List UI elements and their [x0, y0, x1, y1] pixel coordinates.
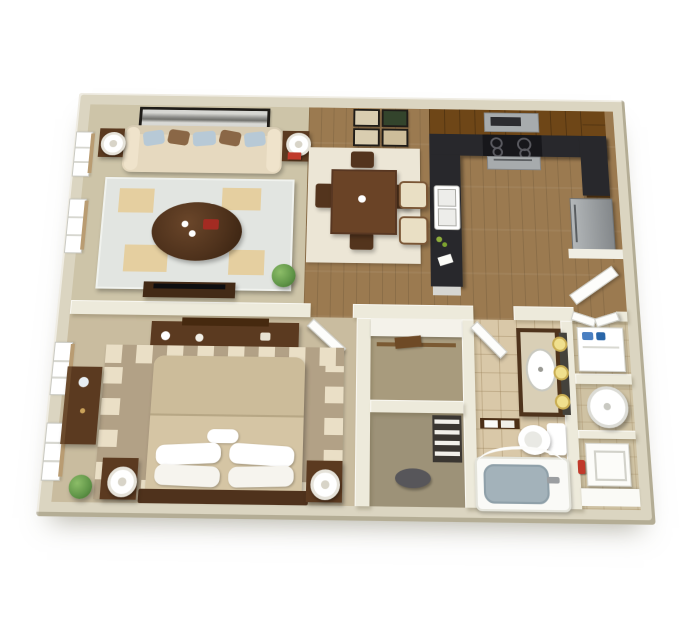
jewelry-box — [260, 333, 270, 341]
sink-basin — [438, 208, 457, 226]
bed-pillow — [228, 443, 295, 468]
sconce-light — [552, 337, 568, 352]
towel — [484, 420, 498, 428]
rug-block — [228, 250, 265, 276]
accent-pillow — [207, 429, 239, 443]
wall-laundry-heater — [575, 373, 632, 384]
folded-clothes — [394, 335, 421, 348]
sconce-light — [554, 394, 570, 410]
utility-counter — [581, 488, 640, 506]
bed-pillow — [228, 466, 294, 488]
framed-picture — [353, 109, 380, 127]
wall-hall-bath — [513, 306, 574, 321]
dining-table — [330, 169, 397, 235]
framed-picture — [353, 128, 380, 146]
throw-pillow-blue — [143, 129, 165, 146]
bed-pillow — [156, 442, 221, 465]
dryer-door — [594, 450, 627, 481]
microwave-hood — [484, 112, 540, 132]
peninsula-base — [433, 286, 461, 295]
dryer — [585, 443, 632, 487]
red-books — [288, 152, 302, 159]
sconce-light — [553, 365, 569, 381]
floor-plan-image — [0, 0, 700, 632]
detergent-bottle — [582, 332, 594, 340]
heater-cap — [603, 403, 611, 410]
limes — [436, 236, 442, 242]
framed-picture — [382, 129, 409, 147]
comforter-fold — [150, 355, 305, 417]
bed-pillow — [153, 464, 220, 488]
paper-towel — [437, 254, 453, 266]
sofa-arm — [123, 127, 140, 170]
dining-chair — [351, 151, 374, 168]
red-tray — [203, 219, 219, 230]
washer — [577, 327, 626, 372]
microwave-window — [490, 117, 521, 126]
washer-panel-line — [583, 346, 620, 349]
cup — [189, 230, 196, 237]
bed — [145, 355, 305, 491]
dresser-shelf — [182, 317, 269, 326]
linen-shelf — [434, 419, 459, 424]
towel — [501, 420, 515, 428]
refrigerator — [570, 198, 616, 251]
throw-pillow-brown — [218, 129, 242, 147]
plate — [195, 334, 204, 342]
peninsula-counter — [429, 155, 462, 287]
fridge-handle — [574, 205, 578, 243]
flat-tv — [153, 283, 225, 289]
dresser-knob — [80, 408, 86, 413]
linen-shelves — [432, 415, 462, 462]
wall-heater-utility — [578, 430, 636, 439]
towel-bar — [480, 418, 520, 429]
linen-shelf — [435, 451, 460, 456]
closet-shelf — [371, 318, 462, 337]
floor-plan-scene — [56, 76, 642, 514]
rug-block — [222, 188, 262, 211]
tub-basin — [483, 464, 550, 504]
oval-mat — [395, 468, 431, 488]
table-vase — [358, 195, 366, 203]
cooktop — [482, 134, 542, 156]
sofa-arm — [266, 129, 281, 172]
fridge-ledge — [568, 249, 623, 259]
dresser-flower — [78, 377, 89, 387]
throw-pillow-brown — [167, 129, 191, 146]
fire-extinguisher — [578, 460, 586, 474]
wall-closet-dressing — [370, 400, 463, 414]
throw-pillow-blue — [244, 131, 266, 148]
rug-block — [118, 188, 155, 213]
bar-stool — [399, 181, 428, 209]
kitchen-sink — [434, 185, 461, 230]
throw-pillow-blue — [193, 131, 217, 147]
bar-stool — [399, 216, 429, 245]
wall-bedroom-closet — [355, 318, 371, 506]
art-grid-of-four — [353, 109, 408, 147]
sofa — [121, 125, 283, 174]
sink-basin — [438, 189, 457, 207]
cup — [181, 221, 188, 228]
framed-picture — [382, 109, 409, 127]
limes — [442, 242, 447, 247]
plate — [161, 331, 171, 340]
tub-faucet — [547, 477, 560, 484]
apartment-plan — [36, 93, 656, 525]
dining-chair — [350, 232, 374, 249]
detergent-bottle — [596, 332, 606, 340]
linen-shelf — [435, 430, 460, 435]
headboard — [138, 489, 309, 506]
counter-right-run — [579, 136, 610, 196]
oven-handle — [494, 159, 532, 161]
linen-shelf — [435, 441, 460, 446]
sink-drain — [538, 367, 543, 372]
oven-door — [487, 156, 541, 170]
tall-dresser — [60, 366, 102, 444]
